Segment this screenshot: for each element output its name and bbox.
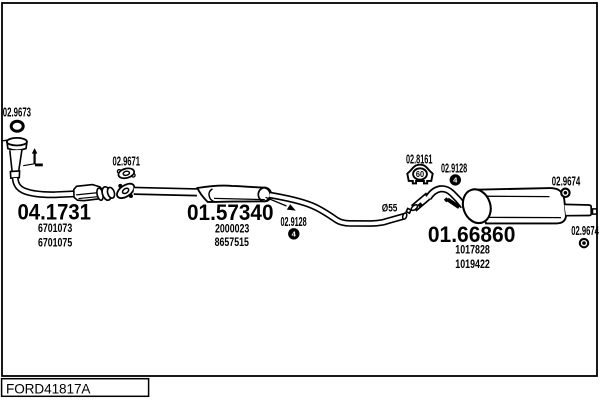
svg-text:6701075: 6701075 bbox=[38, 236, 72, 250]
svg-text:Ø55: Ø55 bbox=[382, 203, 398, 215]
svg-text:02.9674: 02.9674 bbox=[571, 224, 599, 238]
svg-text:02.9128: 02.9128 bbox=[281, 215, 307, 229]
svg-text:6701073: 6701073 bbox=[38, 221, 72, 235]
svg-text:02.9674: 02.9674 bbox=[552, 175, 581, 189]
svg-text:60: 60 bbox=[416, 170, 425, 179]
svg-text:1017828: 1017828 bbox=[455, 243, 490, 257]
svg-text:02.9671: 02.9671 bbox=[113, 155, 141, 169]
svg-text:2000023: 2000023 bbox=[215, 222, 250, 236]
svg-text:FORD41817A: FORD41817A bbox=[6, 382, 91, 397]
svg-text:1019422: 1019422 bbox=[455, 257, 490, 271]
svg-text:02.9673: 02.9673 bbox=[3, 106, 31, 120]
svg-text:02.9128: 02.9128 bbox=[441, 161, 467, 175]
svg-text:8657515: 8657515 bbox=[215, 235, 250, 249]
